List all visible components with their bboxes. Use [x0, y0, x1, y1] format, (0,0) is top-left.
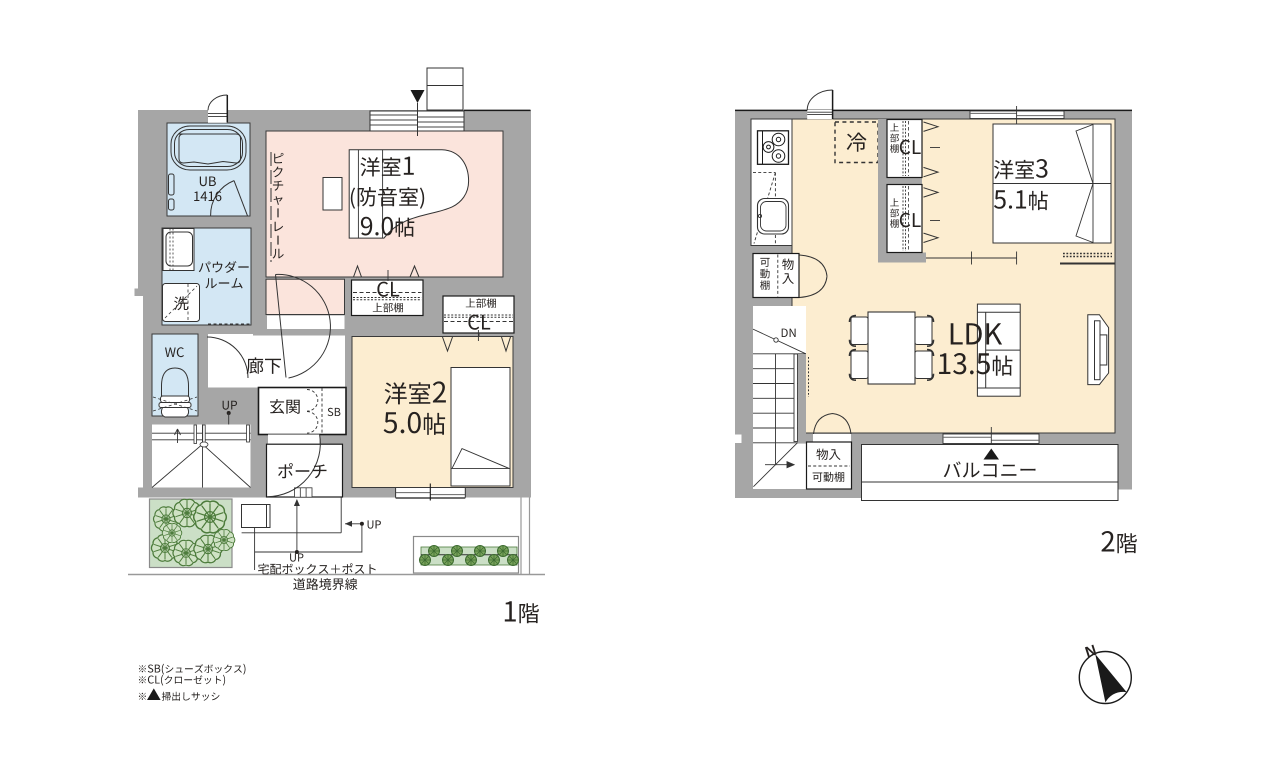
svg-text:N: N	[1083, 642, 1099, 662]
